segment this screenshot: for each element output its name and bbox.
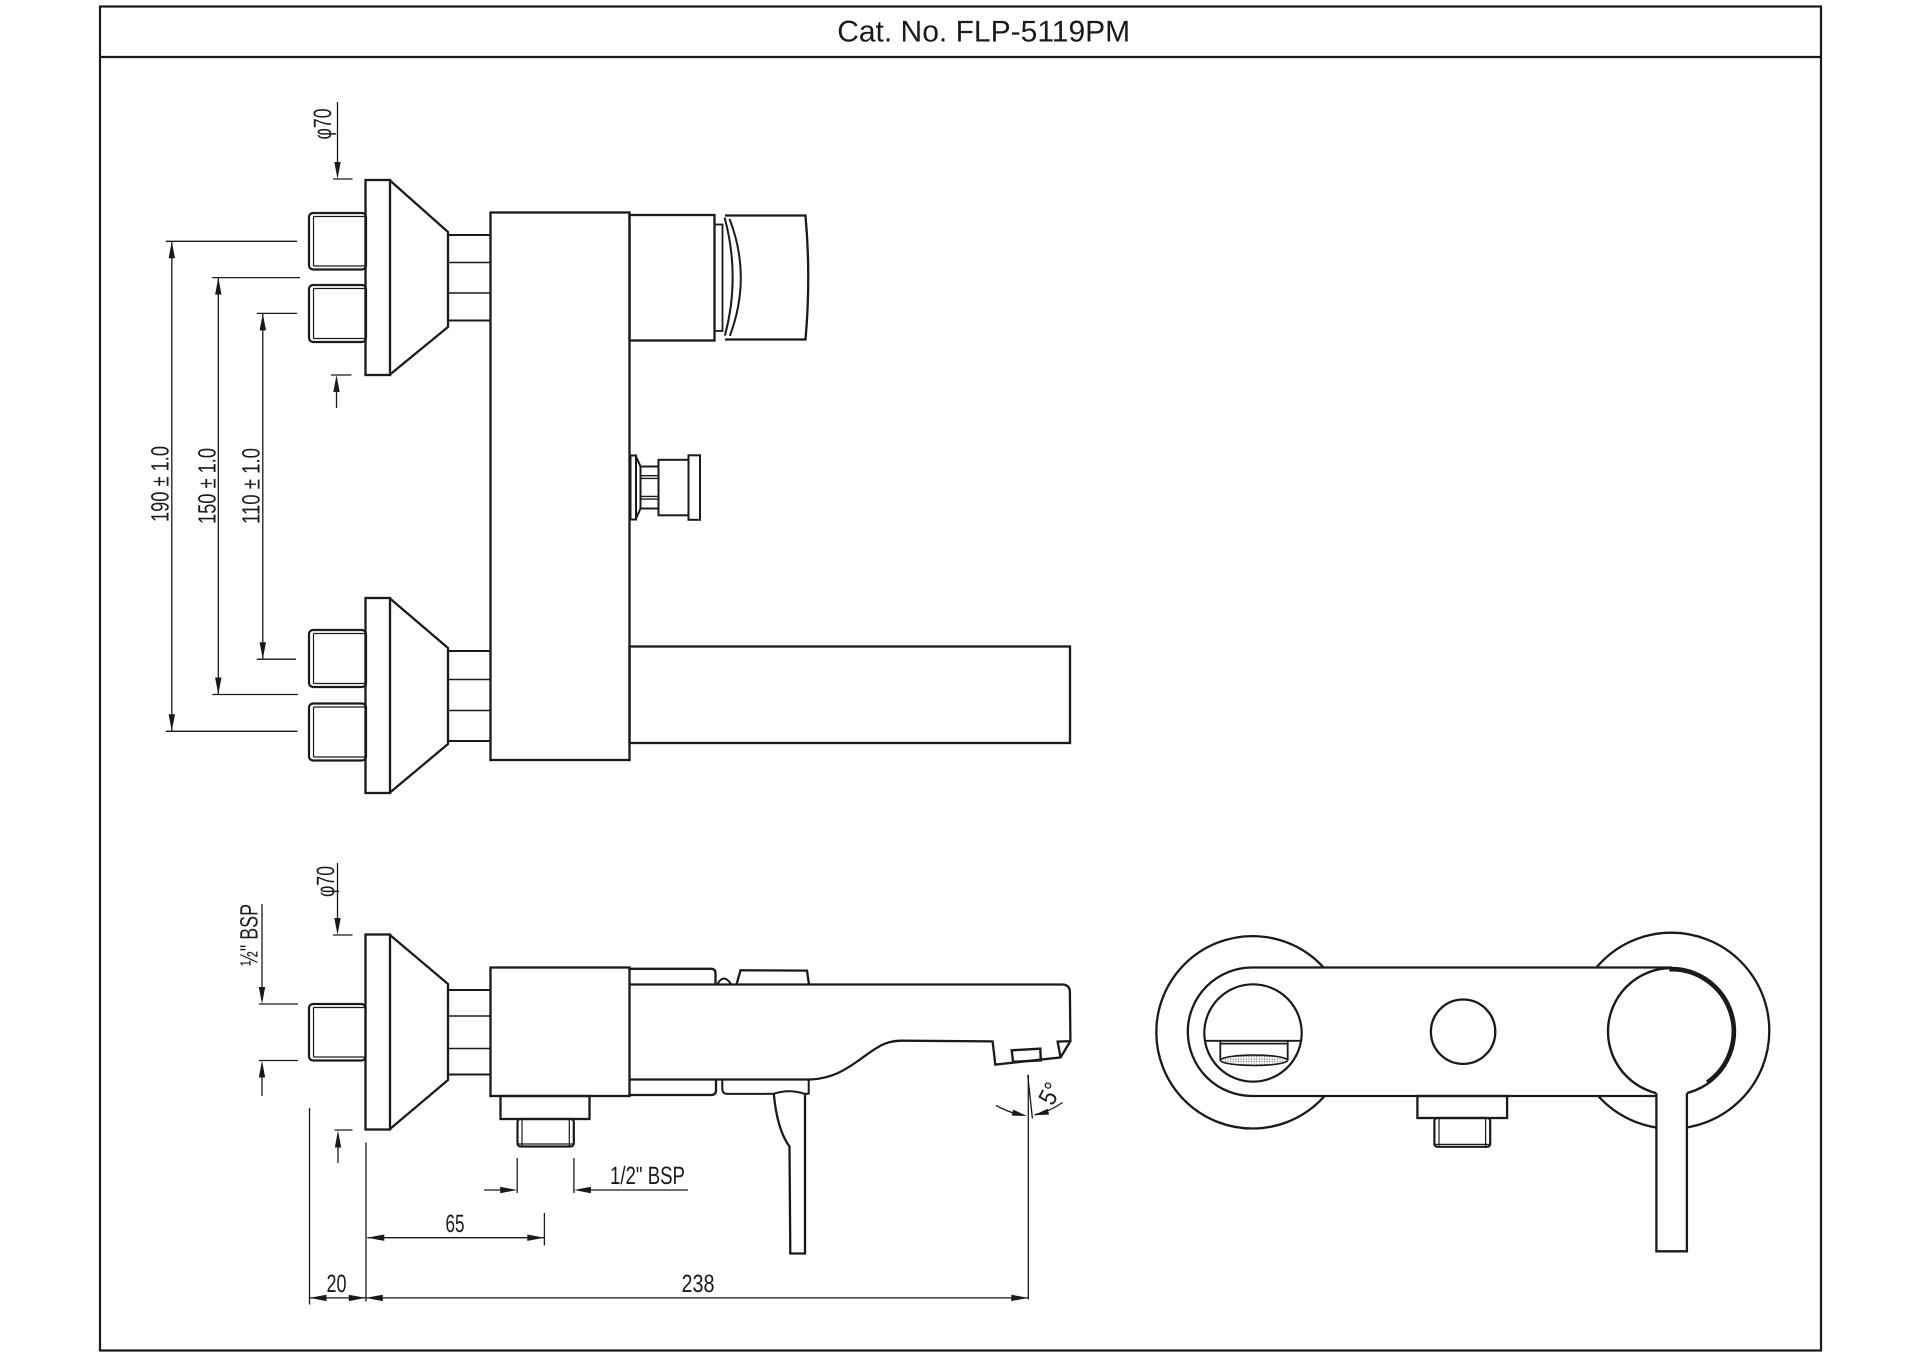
svg-text:φ70: φ70 [309, 109, 337, 140]
svg-text:238: 238 [682, 1270, 715, 1298]
svg-text:1/2" BSP: 1/2" BSP [610, 1162, 685, 1190]
svg-text:20: 20 [327, 1270, 347, 1298]
svg-text:φ70: φ70 [312, 866, 340, 897]
svg-text:5°: 5° [1033, 1078, 1068, 1110]
svg-text:½" BSP: ½" BSP [236, 904, 264, 966]
svg-text:Cat. No. FLP-5119PM: Cat. No. FLP-5119PM [837, 16, 1130, 49]
svg-text:150 ± 1.0: 150 ± 1.0 [194, 448, 222, 524]
svg-text:110 ± 1.0: 110 ± 1.0 [238, 448, 266, 524]
svg-text:65: 65 [446, 1210, 465, 1238]
svg-text:190 ± 1.0: 190 ± 1.0 [147, 446, 175, 522]
